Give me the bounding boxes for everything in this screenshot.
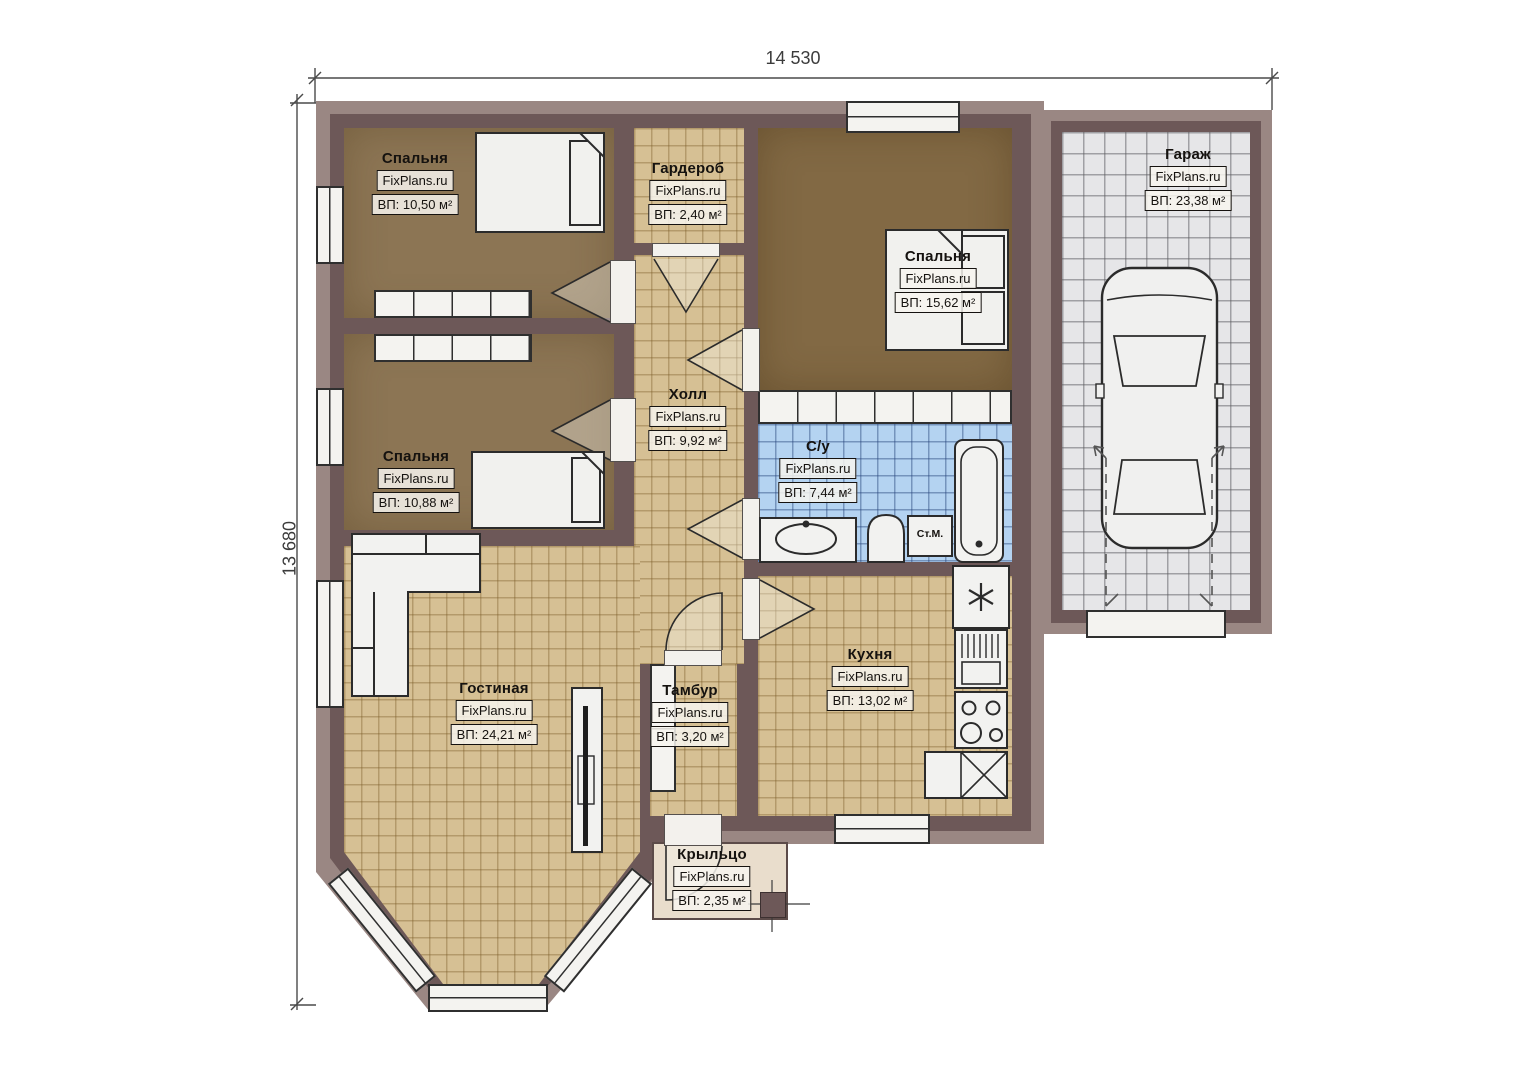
dimension-height: 13 680: [280, 499, 301, 599]
corner-sofa: [352, 534, 480, 696]
area-box: ВП: 9,92 м²: [648, 430, 727, 451]
area-box: ВП: 13,02 м²: [827, 690, 914, 711]
bed-top-left: [476, 133, 604, 232]
washing-machine-label: Ст.М.: [908, 528, 952, 540]
bathtub: [955, 440, 1003, 562]
bed-mid-left: [472, 452, 604, 528]
room-label-vestibule: Тамбур FixPlans.ru ВП: 3,20 м²: [650, 682, 729, 747]
room-label-living-room: Гостиная FixPlans.ru ВП: 24,21 м²: [451, 680, 538, 745]
watermark-box: FixPlans.ru: [1149, 166, 1226, 187]
watermark-box: FixPlans.ru: [831, 666, 908, 687]
toilet: [868, 515, 904, 562]
stove: [955, 692, 1007, 748]
area-box: ВП: 23,38 м²: [1145, 190, 1232, 211]
room-label-garage: Гараж FixPlans.ru ВП: 23,38 м²: [1145, 146, 1232, 211]
room-label-bedroom-top-left: Спальня FixPlans.ru ВП: 10,50 м²: [372, 150, 459, 215]
room-label-wardrobe: Гардероб FixPlans.ru ВП: 2,40 м²: [648, 160, 727, 225]
corner-cabinet: [925, 752, 1007, 798]
watermark-box: FixPlans.ru: [377, 468, 454, 489]
dimension-width: 14 530: [765, 48, 820, 69]
watermark-box: FixPlans.ru: [673, 866, 750, 887]
floor-plan-canvas: 14 530 13 680 Спальня FixPlans.ru ВП: 10…: [0, 0, 1528, 1080]
watermark-box: FixPlans.ru: [779, 458, 856, 479]
plan-graphics-layer: [0, 0, 1528, 1080]
area-box: ВП: 7,44 м²: [778, 482, 857, 503]
watermark-box: FixPlans.ru: [649, 406, 726, 427]
room-label-bathroom: С/у FixPlans.ru ВП: 7,44 м²: [778, 438, 857, 503]
area-box: ВП: 15,62 м²: [895, 292, 982, 313]
area-box: ВП: 3,20 м²: [650, 726, 729, 747]
watermark-box: FixPlans.ru: [455, 700, 532, 721]
tv-unit: [572, 688, 602, 852]
room-label-bedroom-mid-left: Спальня FixPlans.ru ВП: 10,88 м²: [373, 448, 460, 513]
area-box: ВП: 10,50 м²: [372, 194, 459, 215]
bathroom-vanity: [760, 518, 856, 562]
room-label-bedroom-right: Спальня FixPlans.ru ВП: 15,62 м²: [895, 248, 982, 313]
area-box: ВП: 10,88 м²: [373, 492, 460, 513]
room-label-porch: Крыльцо FixPlans.ru ВП: 2,35 м²: [672, 846, 751, 911]
area-box: ВП: 24,21 м²: [451, 724, 538, 745]
fridge: [953, 566, 1009, 628]
car: [1096, 268, 1223, 548]
room-label-kitchen: Кухня FixPlans.ru ВП: 13,02 м²: [827, 646, 914, 711]
watermark-box: FixPlans.ru: [651, 702, 728, 723]
watermark-box: FixPlans.ru: [376, 170, 453, 191]
watermark-box: FixPlans.ru: [649, 180, 726, 201]
watermark-box: FixPlans.ru: [899, 268, 976, 289]
kitchen-sink-unit: [955, 630, 1007, 688]
room-label-hall: Холл FixPlans.ru ВП: 9,92 м²: [648, 386, 727, 451]
porch-post: [760, 892, 786, 918]
area-box: ВП: 2,35 м²: [672, 890, 751, 911]
area-box: ВП: 2,40 м²: [648, 204, 727, 225]
